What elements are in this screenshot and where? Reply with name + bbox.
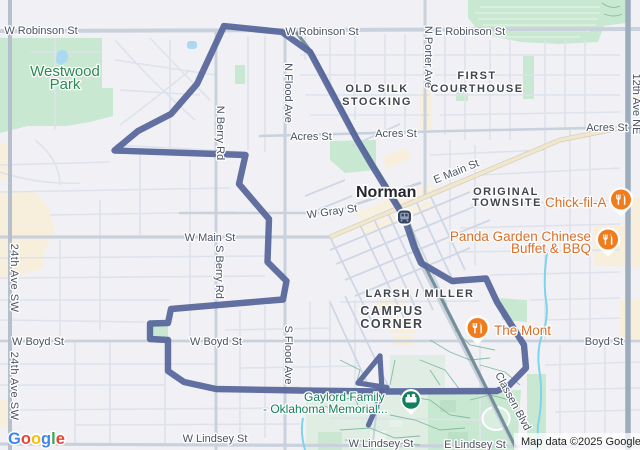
svg-text:W Lindsey St: W Lindsey St xyxy=(349,438,414,450)
svg-text:S Flood Ave: S Flood Ave xyxy=(282,325,294,384)
svg-text:N Berry Rd: N Berry Rd xyxy=(214,106,226,160)
svg-text:- Oklahoma Memorial...: - Oklahoma Memorial... xyxy=(263,402,388,416)
svg-text:Acres St: Acres St xyxy=(375,128,417,140)
svg-text:W Main St: W Main St xyxy=(185,232,236,244)
svg-text:24th Ave SW: 24th Ave SW xyxy=(8,352,20,421)
svg-text:LARSH / MILLER: LARSH / MILLER xyxy=(366,288,475,300)
svg-text:CAMPUS: CAMPUS xyxy=(360,304,423,318)
svg-text:Boyd St: Boyd St xyxy=(585,336,624,348)
svg-text:STOCKING: STOCKING xyxy=(342,96,412,108)
svg-text:COURTHOUSE: COURTHOUSE xyxy=(430,83,523,95)
svg-text:S Berry Rd: S Berry Rd xyxy=(213,245,225,299)
svg-text:12th Ave NE: 12th Ave NE xyxy=(630,74,640,135)
svg-text:Buffet & BBQ: Buffet & BBQ xyxy=(511,241,591,256)
svg-text:Norman: Norman xyxy=(356,184,416,201)
svg-text:Acres St: Acres St xyxy=(290,131,332,143)
svg-text:Park: Park xyxy=(50,76,81,93)
svg-text:W Robinson St: W Robinson St xyxy=(4,25,77,37)
svg-text:N Flood Ave: N Flood Ave xyxy=(282,63,294,123)
svg-text:E Lindsey St: E Lindsey St xyxy=(444,439,506,450)
svg-text:The Mont: The Mont xyxy=(494,323,551,338)
svg-text:TOWNSITE: TOWNSITE xyxy=(472,197,542,209)
svg-text:Acres St: Acres St xyxy=(586,122,628,134)
svg-text:24th Ave SW: 24th Ave SW xyxy=(8,244,20,313)
svg-text:Map data ©2025 Google: Map data ©2025 Google xyxy=(521,436,640,448)
svg-text:E Robinson St: E Robinson St xyxy=(435,26,505,38)
svg-text:OLD SILK: OLD SILK xyxy=(345,83,408,95)
svg-text:CORNER: CORNER xyxy=(360,317,423,331)
svg-text:N Porter Ave: N Porter Ave xyxy=(422,26,434,88)
svg-text:W Robinson St: W Robinson St xyxy=(285,26,358,38)
svg-text:W Boyd St: W Boyd St xyxy=(190,336,242,348)
svg-text:W Lindsey St: W Lindsey St xyxy=(183,433,248,445)
svg-text:Chick-fil-A: Chick-fil-A xyxy=(545,195,607,210)
svg-text:FIRST: FIRST xyxy=(457,70,496,82)
svg-text:Google: Google xyxy=(8,430,65,448)
svg-text:W Boyd St: W Boyd St xyxy=(12,336,64,348)
